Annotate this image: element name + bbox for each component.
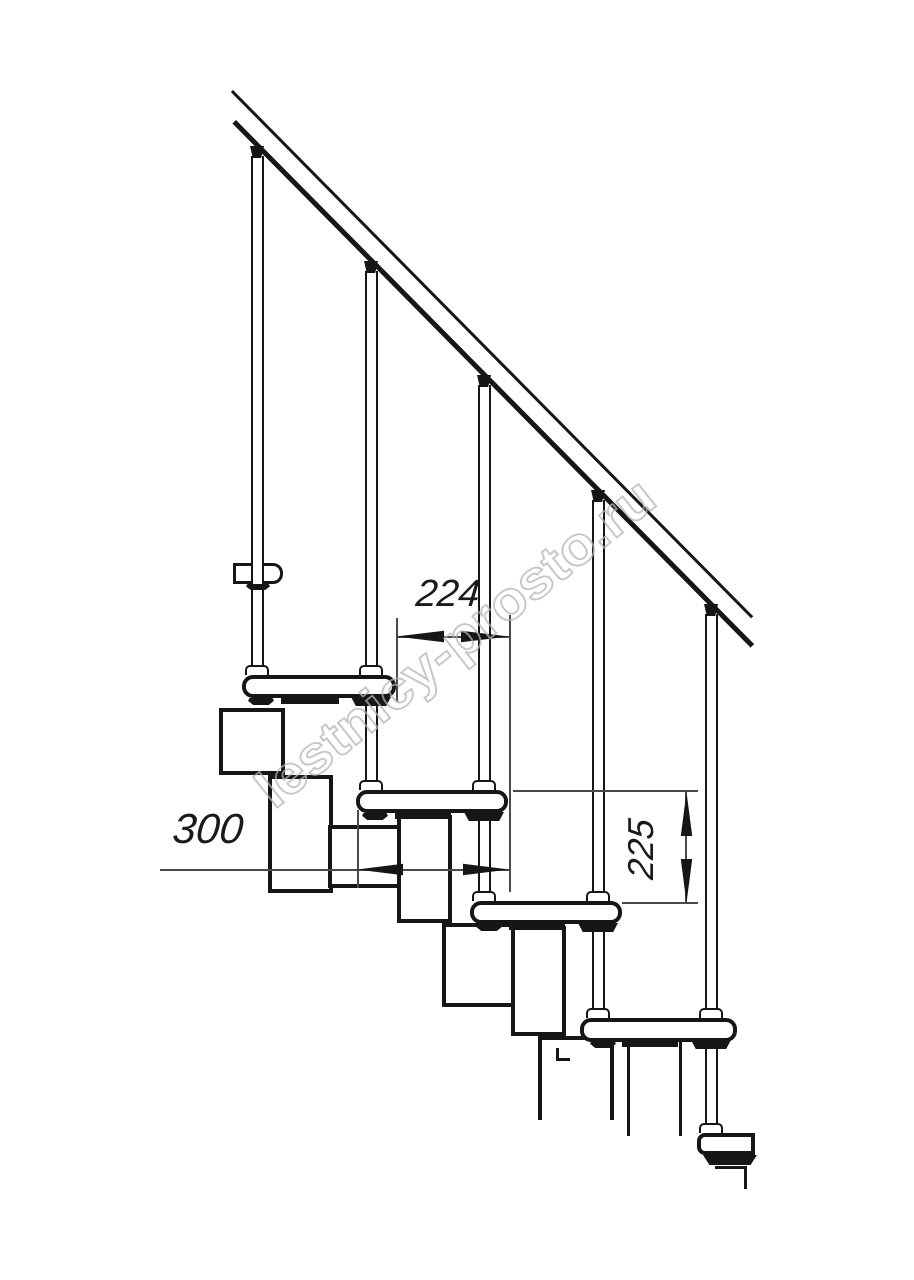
break-mark xyxy=(556,1058,570,1061)
spine-module xyxy=(442,923,517,1007)
arrowhead-down xyxy=(680,859,693,903)
stair-drawing-canvas: 224 300 225 xyxy=(0,0,914,1280)
collar xyxy=(699,1123,723,1133)
fitting xyxy=(351,697,391,706)
baluster-1-through-stub xyxy=(251,563,264,584)
collar xyxy=(472,780,496,790)
baluster-4-lower xyxy=(592,924,605,1010)
fitting xyxy=(281,698,339,704)
tread-5 xyxy=(580,1018,737,1042)
spine-module xyxy=(268,775,333,893)
spine-module-cut xyxy=(538,1036,614,1120)
watermark: lestnicy-prosto.ru xyxy=(0,0,914,1280)
extension-line xyxy=(396,618,398,702)
tread-3 xyxy=(356,790,508,813)
baluster-4 xyxy=(592,500,605,891)
baluster-2 xyxy=(365,271,378,667)
fitting xyxy=(691,1040,731,1049)
step-cut-line xyxy=(715,1166,747,1169)
spine-module xyxy=(219,708,285,775)
dimension-224-label: 224 xyxy=(396,575,500,613)
spine-module xyxy=(511,926,566,1036)
tread-6-partial xyxy=(697,1133,755,1155)
tread-4 xyxy=(470,901,622,924)
extension-line xyxy=(357,810,359,888)
collar xyxy=(359,780,383,790)
tread-2 xyxy=(242,675,396,698)
collar xyxy=(359,665,383,675)
extension-line xyxy=(513,790,698,792)
collar xyxy=(472,891,496,901)
fitting xyxy=(509,924,565,930)
arrowhead-up xyxy=(680,792,693,836)
fitting xyxy=(578,923,618,932)
baluster-3-lower xyxy=(478,813,491,893)
baluster-5 xyxy=(705,614,718,1008)
fitting xyxy=(590,1041,616,1048)
handrail-top-line xyxy=(231,90,753,618)
collar xyxy=(699,1008,723,1018)
fitting xyxy=(622,1041,678,1047)
fitting xyxy=(246,584,270,590)
fitting xyxy=(703,1155,757,1165)
collar xyxy=(586,891,610,901)
baluster-2-lower xyxy=(365,700,378,783)
baluster-5-lower xyxy=(705,1042,718,1125)
fitting xyxy=(395,813,451,819)
collar xyxy=(245,665,269,675)
fitting xyxy=(464,812,504,821)
step-cut-line xyxy=(744,1166,747,1189)
dimension-300-label: 300 xyxy=(154,808,262,850)
spine-module xyxy=(328,825,403,888)
dimension-225-label: 225 xyxy=(623,804,659,894)
handrail-bottom-line xyxy=(232,120,754,648)
arrowhead-left xyxy=(396,630,444,643)
spine-module-cut xyxy=(627,1040,682,1136)
fitting xyxy=(248,698,274,705)
dimension-line xyxy=(160,869,509,871)
collar xyxy=(586,1008,610,1018)
fitting xyxy=(362,813,388,820)
extension-line xyxy=(509,615,511,892)
